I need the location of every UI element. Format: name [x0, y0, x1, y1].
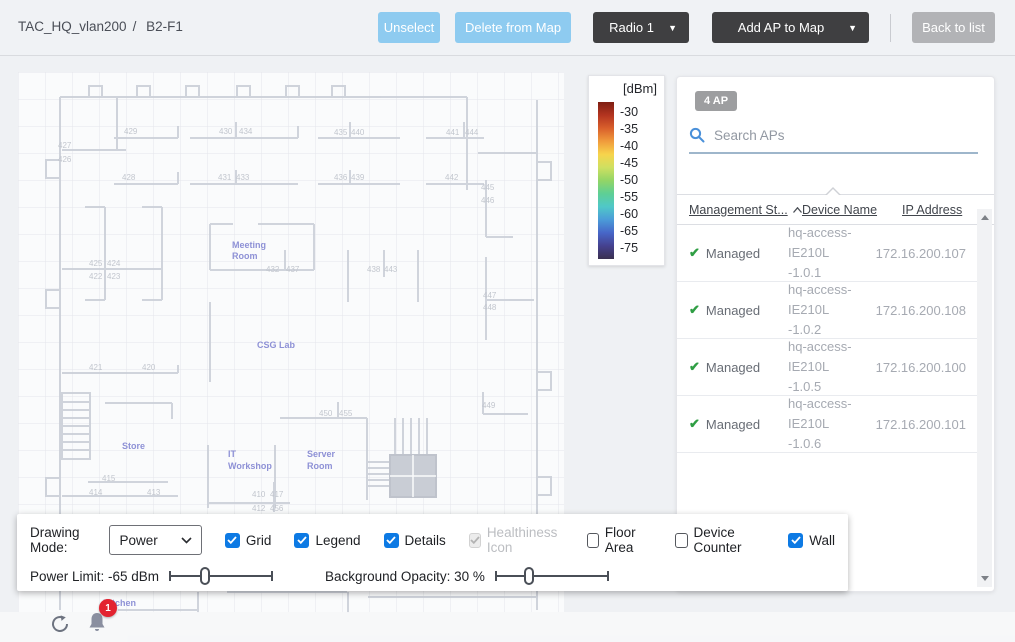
svg-text:Store: Store: [122, 441, 145, 451]
breadcrumb-floor-name: B2-F1: [146, 19, 183, 34]
sort-ascending-icon: [793, 207, 802, 213]
elevator-shaft: [390, 455, 436, 497]
legend-tick: -75: [620, 241, 638, 255]
caret-down-icon: ▼: [668, 23, 677, 33]
svg-text:455: 455: [339, 409, 353, 418]
column-ip-address[interactable]: IP Address: [902, 203, 962, 217]
legend-tick-labels: -30 -35 -40 -45 -50 -55 -60 -65 -75: [620, 105, 638, 255]
ap-device-name-line1: hq-access-IE210L: [788, 223, 876, 263]
svg-text:450: 450: [319, 409, 333, 418]
legend-tick: -50: [620, 173, 638, 187]
svg-text:448: 448: [483, 303, 497, 312]
footer-strip: [0, 612, 1015, 642]
svg-text:CSG Lab: CSG Lab: [257, 340, 296, 350]
svg-text:414: 414: [89, 488, 103, 497]
refresh-icon[interactable]: [48, 612, 72, 636]
drawing-mode-select[interactable]: Power: [109, 525, 201, 555]
svg-text:436: 436: [334, 173, 348, 182]
svg-text:415: 415: [102, 474, 116, 483]
legend-tick: -30: [620, 105, 638, 119]
svg-text:444: 444: [465, 128, 479, 137]
svg-text:429: 429: [124, 127, 138, 136]
svg-text:430: 430: [219, 127, 233, 136]
legend-tick: -55: [620, 190, 638, 204]
svg-text:438: 438: [367, 265, 381, 274]
ap-search: [689, 127, 978, 154]
background-opacity-slider[interactable]: [495, 567, 609, 585]
radio-dropdown-label: Radio 1: [609, 20, 654, 35]
ap-table-row[interactable]: ✔ Managed hq-access-IE210L -1.0.6 172.16…: [677, 396, 978, 453]
checkbox-disabled-icon: [469, 533, 481, 548]
svg-text:410: 410: [252, 490, 266, 499]
svg-text:437: 437: [286, 265, 300, 274]
dbm-legend: [dBm] -30 -35 -40 -45 -50 -55 -60 -65 -7…: [588, 75, 665, 266]
drawing-mode-value: Power: [119, 533, 157, 548]
checkbox-unchecked-icon: [675, 533, 687, 548]
radio-dropdown[interactable]: Radio 1 ▼: [593, 12, 689, 43]
checkbox-checked-icon: [294, 533, 309, 548]
ap-table-row[interactable]: ✔ Managed hq-access-IE210L -1.0.1 172.16…: [677, 225, 978, 282]
svg-text:420: 420: [142, 363, 156, 372]
slider-min-tick: [495, 571, 497, 581]
scroll-down-icon[interactable]: [981, 576, 989, 581]
add-ap-dropdown-label: Add AP to Map: [738, 20, 825, 35]
svg-text:422: 422: [89, 272, 103, 281]
svg-text:439: 439: [351, 173, 365, 182]
svg-text:449: 449: [482, 401, 496, 410]
ap-device-name-line1: hq-access-IE210L: [788, 337, 876, 377]
svg-text:IT: IT: [228, 449, 237, 459]
search-input[interactable]: [714, 128, 978, 143]
svg-text:Workshop: Workshop: [228, 461, 272, 471]
drawing-controls-panel: Drawing Mode: Power Grid Legend Details: [17, 514, 848, 591]
svg-text:425: 425: [89, 259, 103, 268]
background-opacity-slider-thumb[interactable]: [524, 567, 534, 585]
svg-text:433: 433: [236, 173, 250, 182]
caret-down-icon: ▼: [848, 23, 857, 33]
svg-text:447: 447: [483, 291, 497, 300]
ap-list-scrollbar[interactable]: [977, 209, 992, 587]
slider-track: [495, 575, 609, 577]
ap-status: Managed: [706, 360, 760, 375]
ap-device-name-line1: hq-access-IE210L: [788, 280, 876, 320]
managed-check-icon: ✔: [689, 416, 700, 432]
ap-device-name-line2: -1.0.6: [788, 434, 876, 454]
checkbox-healthiness-icon: Healthiness Icon: [469, 525, 564, 555]
checkbox-floor-area[interactable]: Floor Area: [587, 525, 653, 555]
svg-text:426: 426: [58, 155, 72, 164]
managed-check-icon: ✔: [689, 302, 700, 318]
notification-count-badge[interactable]: 1: [99, 599, 117, 617]
legend-title: [dBm]: [623, 81, 657, 96]
back-to-list-button[interactable]: Back to list: [912, 12, 995, 43]
ap-table-row[interactable]: ✔ Managed hq-access-IE210L -1.0.5 172.16…: [677, 339, 978, 396]
drawing-mode-label: Drawing Mode:: [30, 525, 101, 555]
scroll-up-icon[interactable]: [981, 215, 989, 220]
ap-count-badge: 4 AP: [695, 91, 737, 111]
svg-text:456: 456: [270, 504, 284, 513]
checkbox-checked-icon: [788, 533, 803, 548]
svg-text:423: 423: [107, 272, 121, 281]
ap-ip-address: 172.16.200.107: [876, 246, 966, 261]
ap-status: Managed: [706, 303, 760, 318]
checkbox-device-counter[interactable]: Device Counter: [675, 525, 765, 555]
top-bar: TAC_HQ_vlan200/ B2-F1 Unselect Delete fr…: [0, 0, 1015, 56]
delete-from-map-button[interactable]: Delete from Map: [455, 12, 571, 43]
svg-text:432: 432: [266, 265, 280, 274]
svg-text:Meeting: Meeting: [232, 240, 266, 250]
svg-text:428: 428: [122, 173, 136, 182]
checkbox-checked-icon: [225, 533, 240, 548]
toolbar-divider: [890, 14, 891, 42]
checkbox-wall[interactable]: Wall: [788, 533, 835, 548]
unselect-button[interactable]: Unselect: [378, 12, 440, 43]
svg-text:Server: Server: [307, 449, 336, 459]
svg-text:446: 446: [481, 196, 495, 205]
ap-device-name-line1: hq-access-IE210L: [788, 394, 876, 434]
managed-check-icon: ✔: [689, 245, 700, 261]
legend-tick: -60: [620, 207, 638, 221]
column-device-name[interactable]: Device Name: [802, 203, 877, 217]
breadcrumb-separator: /: [133, 19, 137, 34]
ap-status: Managed: [706, 246, 760, 261]
svg-text:424: 424: [107, 259, 121, 268]
slider-max-tick: [271, 571, 273, 581]
svg-text:417: 417: [270, 490, 284, 499]
checkbox-details[interactable]: Details: [384, 533, 446, 548]
slider-min-tick: [169, 571, 171, 581]
column-management-status[interactable]: Management St...: [689, 203, 788, 217]
power-limit-slider[interactable]: [169, 567, 273, 585]
power-limit-slider-thumb[interactable]: [200, 567, 210, 585]
background-opacity-label: Background Opacity: 30 %: [325, 569, 485, 584]
svg-text:427: 427: [58, 141, 72, 150]
legend-colorbar: [598, 102, 614, 259]
slider-max-tick: [607, 571, 609, 581]
ap-ip-address: 172.16.200.108: [876, 303, 966, 318]
svg-text:Room: Room: [307, 461, 333, 471]
svg-text:421: 421: [89, 363, 103, 372]
add-ap-to-map-dropdown[interactable]: Add AP to Map ▼: [712, 12, 869, 43]
ap-table-row[interactable]: ✔ Managed hq-access-IE210L -1.0.2 172.16…: [677, 282, 978, 339]
ap-ip-address: 172.16.200.100: [876, 360, 966, 375]
checkbox-legend[interactable]: Legend: [294, 533, 360, 548]
svg-text:442: 442: [445, 173, 459, 182]
svg-text:441: 441: [446, 128, 460, 137]
breadcrumb-map-name[interactable]: TAC_HQ_vlan200: [18, 19, 127, 34]
ap-status: Managed: [706, 417, 760, 432]
header-notch: [825, 187, 841, 195]
svg-text:435: 435: [334, 128, 348, 137]
svg-text:431: 431: [218, 173, 232, 182]
svg-text:443: 443: [384, 265, 398, 274]
checkbox-unchecked-icon: [587, 533, 599, 548]
svg-text:434: 434: [239, 127, 253, 136]
checkbox-grid[interactable]: Grid: [225, 533, 272, 548]
legend-tick: -40: [620, 139, 638, 153]
power-limit-label: Power Limit: -65 dBm: [30, 569, 159, 584]
breadcrumb: TAC_HQ_vlan200/ B2-F1: [18, 19, 189, 34]
legend-tick: -35: [620, 122, 638, 136]
search-icon: [689, 127, 705, 143]
legend-tick: -45: [620, 156, 638, 170]
svg-text:445: 445: [481, 183, 495, 192]
ap-ip-address: 172.16.200.101: [876, 417, 966, 432]
svg-text:Room: Room: [232, 251, 258, 261]
legend-tick: -65: [620, 224, 638, 238]
slider-track: [169, 575, 273, 577]
checkbox-checked-icon: [384, 533, 399, 548]
svg-text:413: 413: [147, 488, 161, 497]
svg-text:440: 440: [351, 128, 365, 137]
managed-check-icon: ✔: [689, 359, 700, 375]
svg-text:412: 412: [252, 504, 266, 513]
ap-table-header: Management St... Device Name IP Address: [677, 194, 994, 225]
chevron-down-icon: [181, 537, 192, 544]
